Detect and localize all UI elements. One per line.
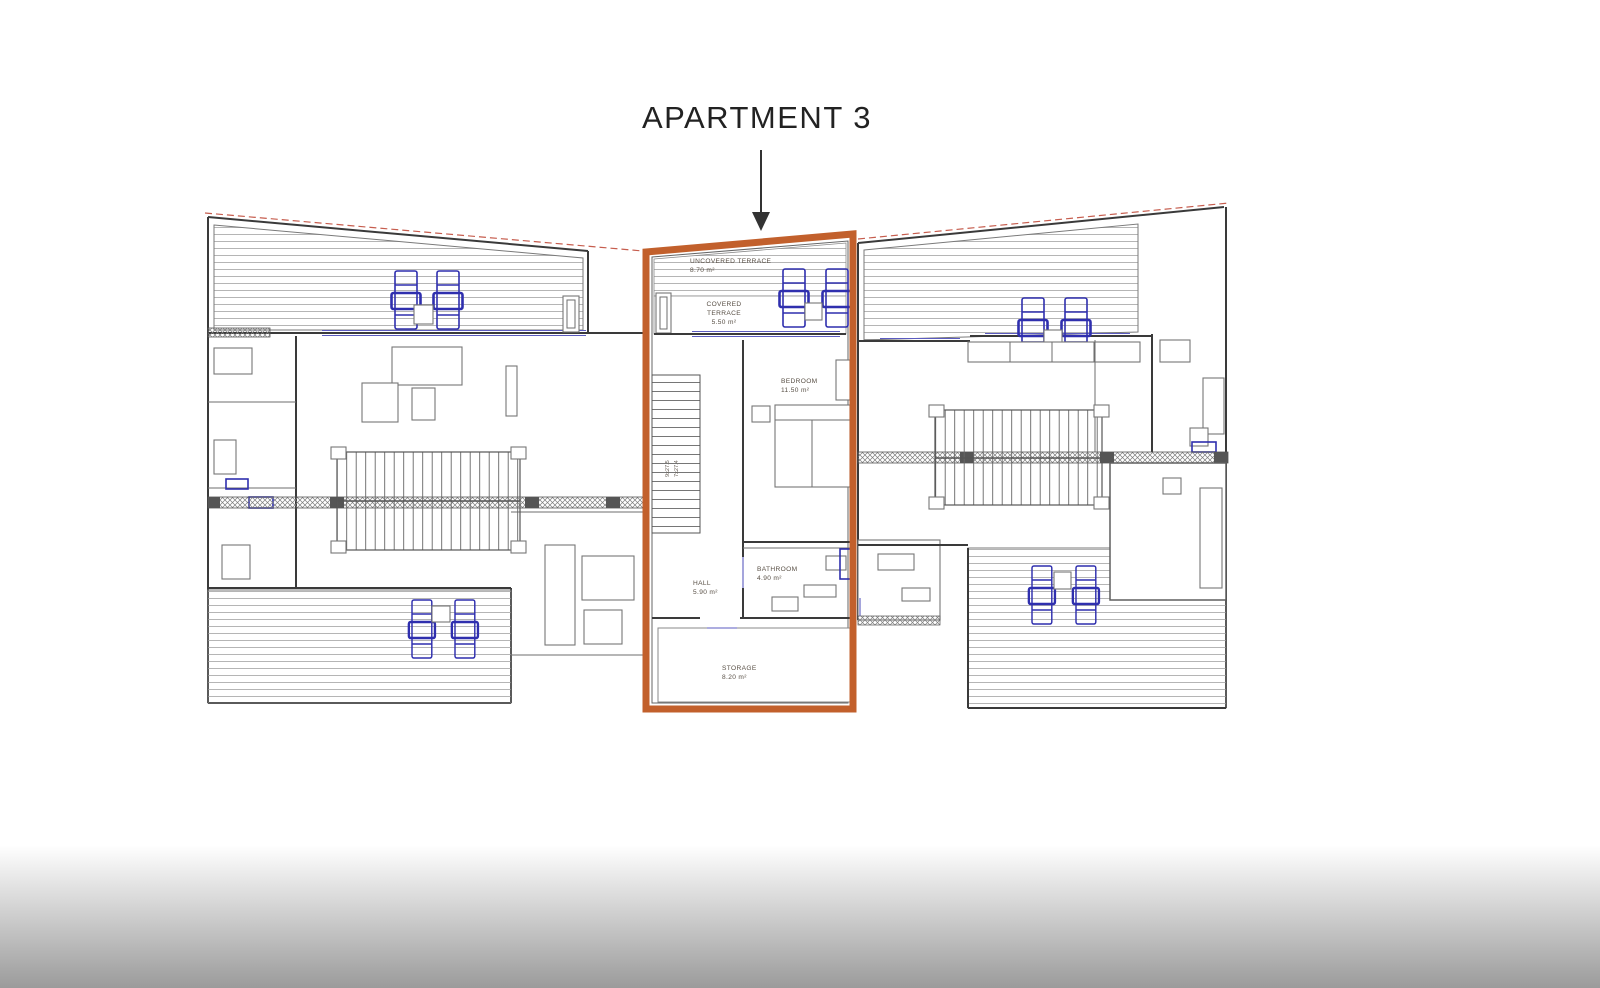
left-small-room-furniture	[214, 348, 273, 579]
nightstand	[752, 406, 770, 422]
room-label-bedroom: BEDROOM	[781, 378, 818, 385]
room-label-storage: STORAGE	[722, 665, 757, 672]
ap3-staircase: 9x27.5 7x27.4	[652, 375, 700, 533]
column	[563, 296, 579, 332]
room-area-covered-terrace: 5.50 m²	[712, 319, 737, 326]
left-mid-walls	[511, 335, 643, 703]
right-top-terrace-deck	[864, 224, 1138, 340]
terrace-table	[1054, 572, 1071, 589]
room-area-bathroom: 4.90 m²	[757, 575, 782, 582]
right-apartment	[858, 203, 1229, 708]
title-arrow	[752, 150, 770, 231]
room-label-covered-terrace-line1: COVERED	[706, 301, 741, 308]
column	[656, 293, 671, 333]
side-table	[1163, 478, 1181, 494]
room-label-covered-terrace-line2: TERRACE	[707, 310, 741, 317]
room-area-bedroom: 11.50 m²	[781, 387, 810, 394]
left-apartment	[205, 213, 643, 703]
ap3-storage: STORAGE 8.20 m²	[658, 628, 850, 702]
room-label-hall: HALL	[693, 580, 711, 587]
wardrobe-row	[968, 342, 1140, 362]
stair-note-line2: 7x27.4	[674, 460, 680, 477]
apartment3-unit: UNCOVERED TERRACE 8.70 m² COVERED TERRAC…	[646, 234, 853, 709]
page-title: APARTMENT 3	[642, 100, 872, 135]
floor-plan-page: APARTMENT 3	[0, 0, 1600, 988]
left-bottom-terrace-deck	[208, 590, 511, 703]
room-label-uncovered-terrace: UNCOVERED TERRACE	[690, 258, 772, 265]
bath-bench	[804, 585, 836, 597]
right-bottom-bedroom	[1110, 463, 1226, 600]
stair-note-line1: 9x27.5	[665, 460, 671, 477]
room-label-bathroom: BATHROOM	[757, 566, 797, 573]
sink-icon	[772, 597, 798, 611]
bed	[1200, 488, 1222, 588]
toilet-icon	[826, 556, 846, 570]
floor-plan-drawing: APARTMENT 3	[0, 0, 1600, 988]
wall-hatch-segment	[208, 328, 270, 337]
terrace-table	[414, 305, 433, 324]
room-area-uncovered-terrace: 8.70 m²	[690, 267, 715, 274]
right-small-bathroom	[858, 540, 940, 625]
bottom-gradient	[0, 845, 1600, 988]
terrace-table	[805, 303, 822, 320]
bed	[1203, 378, 1224, 434]
room-area-storage: 8.20 m²	[722, 674, 747, 681]
room-area-hall: 5.90 m²	[693, 589, 718, 596]
terrace-table	[432, 606, 450, 622]
right-staircase	[929, 405, 1109, 509]
wardrobe	[836, 360, 850, 400]
wardrobe	[1160, 340, 1190, 362]
left-staircase	[331, 447, 526, 553]
